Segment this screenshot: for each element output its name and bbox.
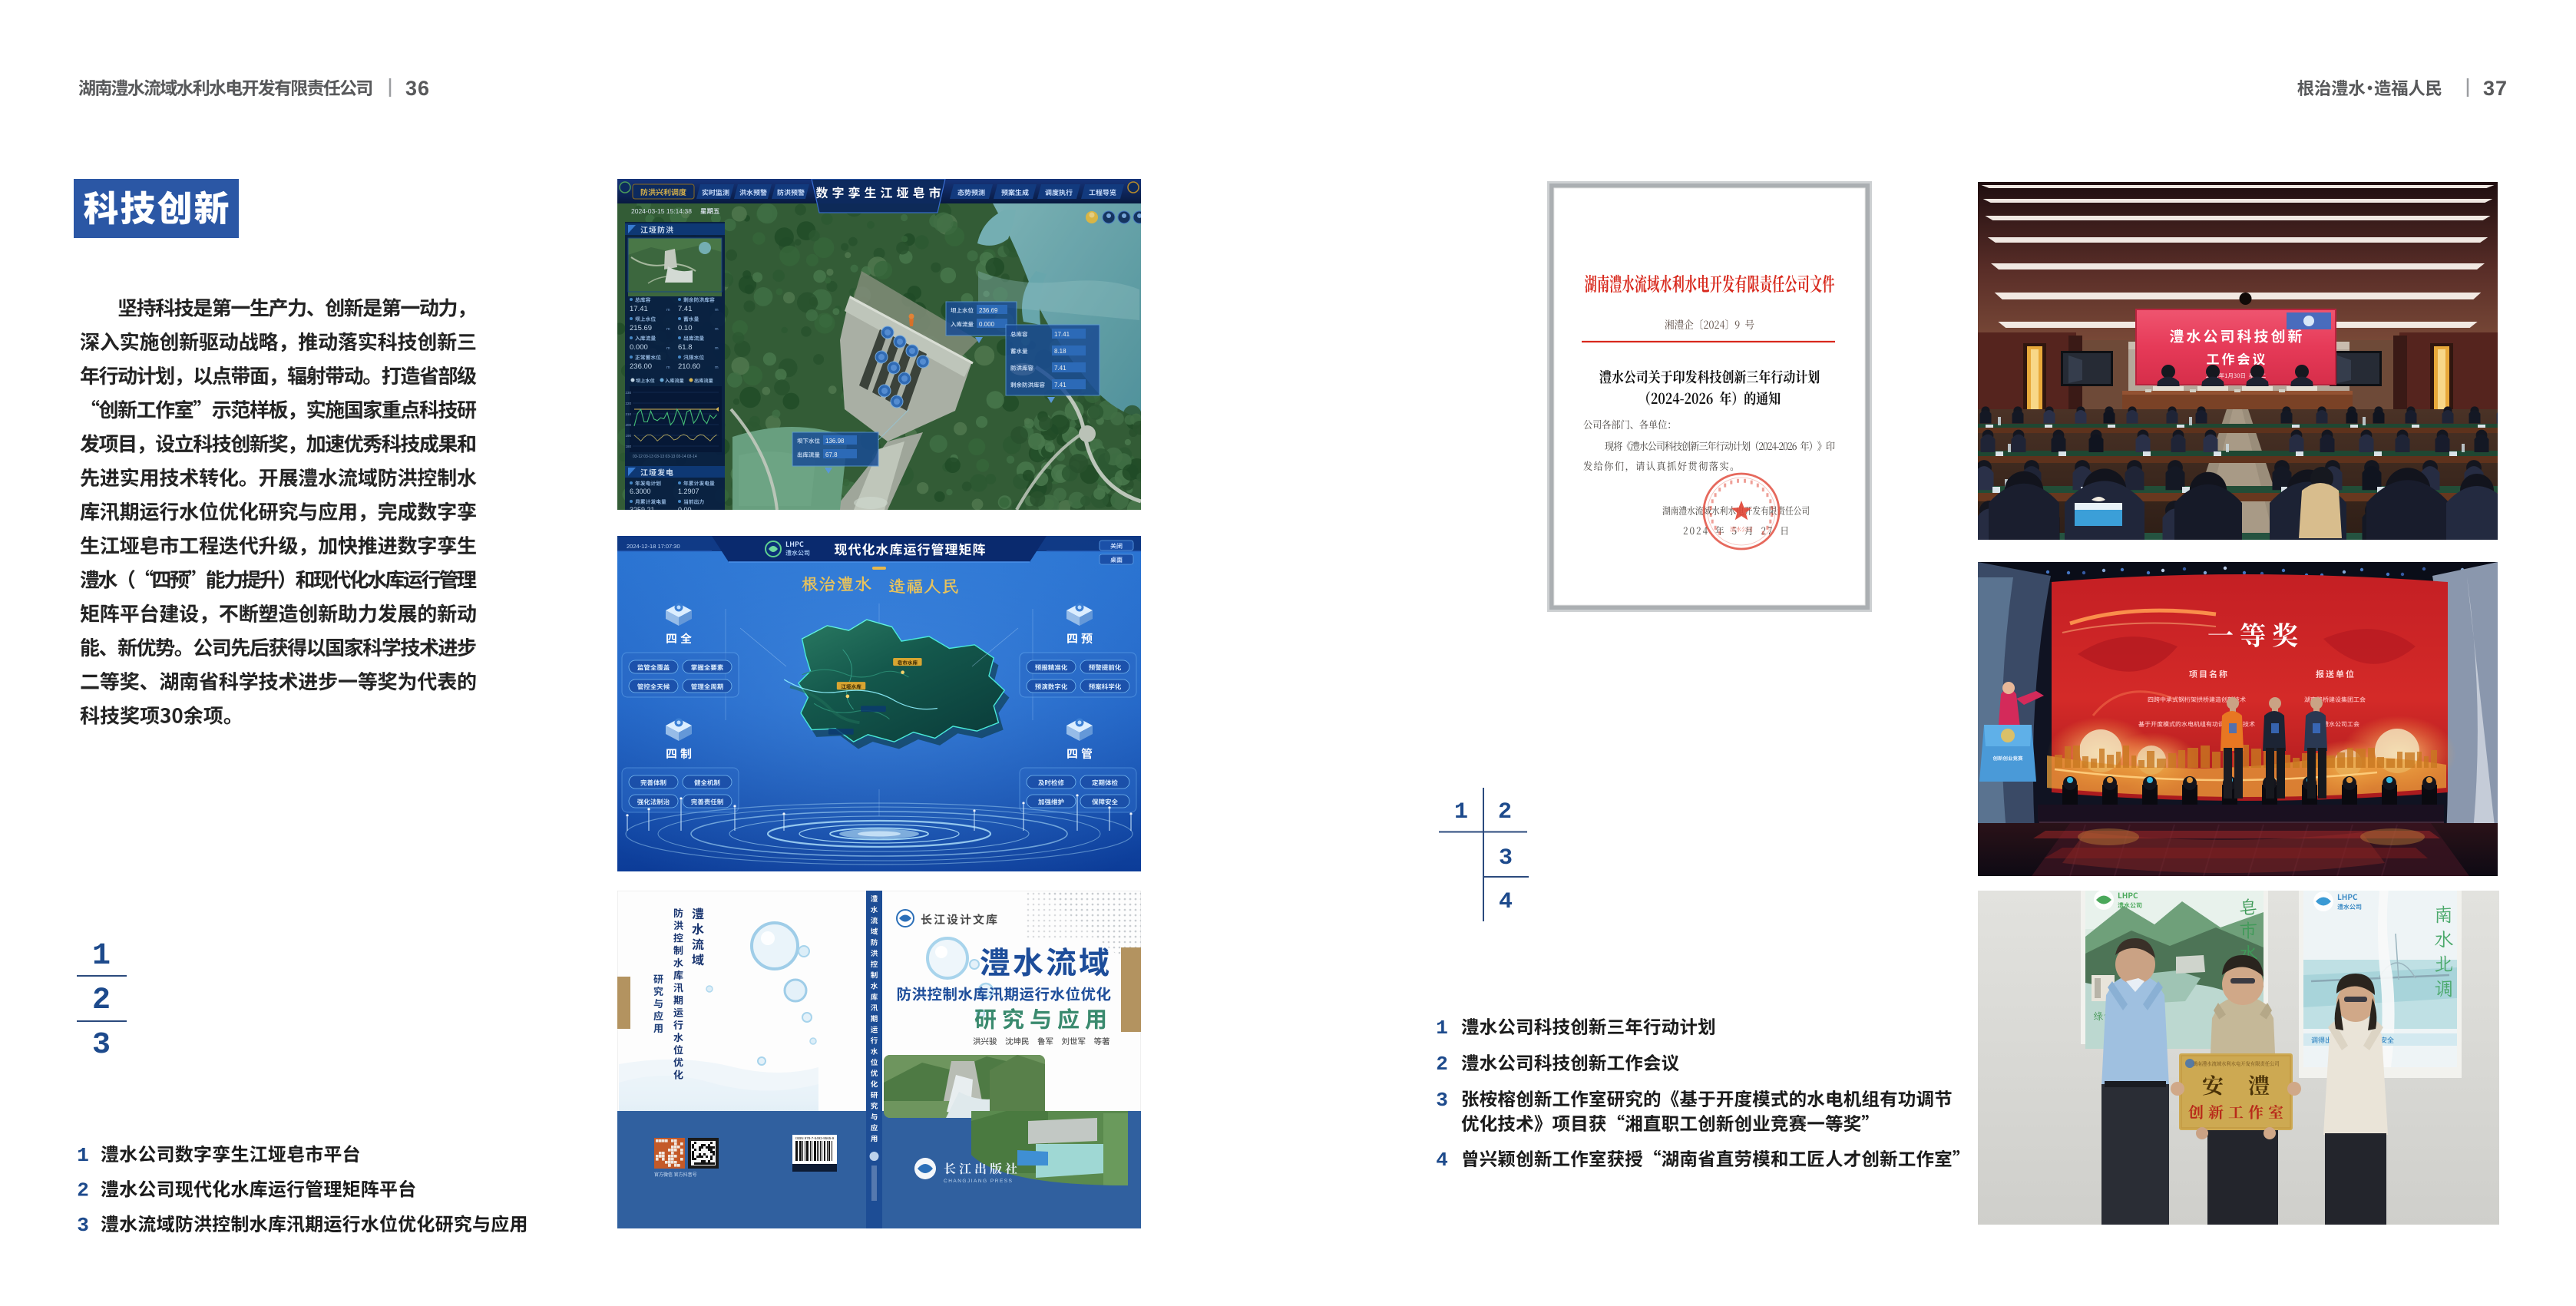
svg-text:2: 2 (1436, 1053, 1448, 1076)
svg-text:CHANGJIANG PRESS: CHANGJIANG PRESS (944, 1179, 1013, 1184)
svg-text:ISBN 978-7-5492-9565-9: ISBN 978-7-5492-9565-9 (795, 1136, 835, 1140)
svg-text:4: 4 (1436, 1149, 1448, 1172)
svg-text:2024-12-18 17:07:30: 2024-12-18 17:07:30 (627, 543, 680, 550)
svg-text:官方微信 官方抖音号: 官方微信 官方抖音号 (654, 1172, 697, 1178)
svg-text:2: 2 (77, 1179, 89, 1202)
svg-text:1: 1 (77, 1144, 89, 1167)
svg-text:2: 2 (92, 984, 111, 1018)
svg-text:1: 1 (92, 939, 111, 974)
svg-text:36: 36 (405, 77, 430, 100)
svg-text:3: 3 (92, 1028, 111, 1063)
svg-text:3: 3 (77, 1214, 89, 1237)
svg-text:1: 1 (1454, 799, 1468, 825)
svg-text:4: 4 (1499, 889, 1513, 915)
svg-text:1: 1 (1436, 1017, 1448, 1040)
svg-text:37: 37 (2483, 77, 2508, 100)
svg-text:2: 2 (1498, 799, 1512, 825)
svg-text:3: 3 (1499, 845, 1513, 871)
svg-text:3: 3 (1436, 1089, 1448, 1112)
